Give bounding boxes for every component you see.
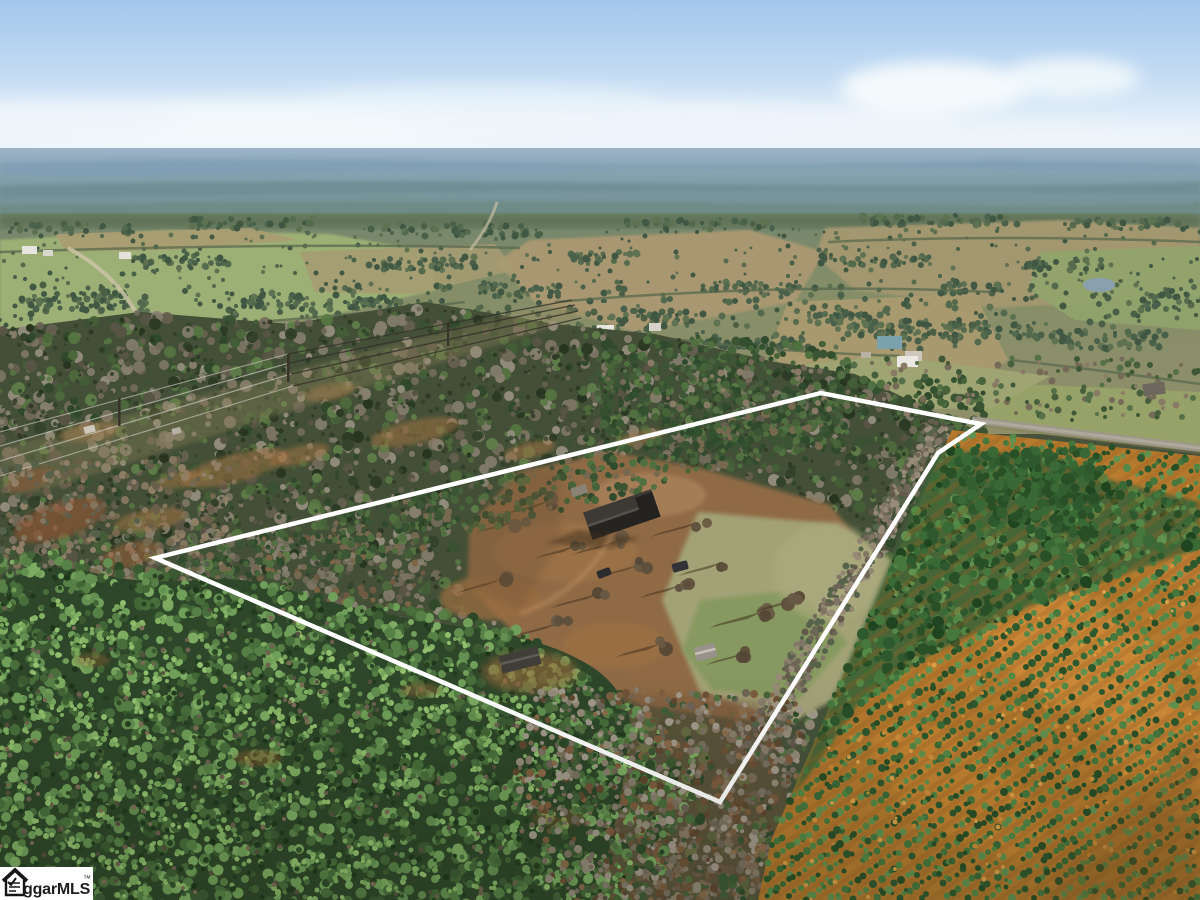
- svg-text:ggarMLS: ggarMLS: [23, 881, 91, 898]
- svg-text:™: ™: [83, 874, 91, 883]
